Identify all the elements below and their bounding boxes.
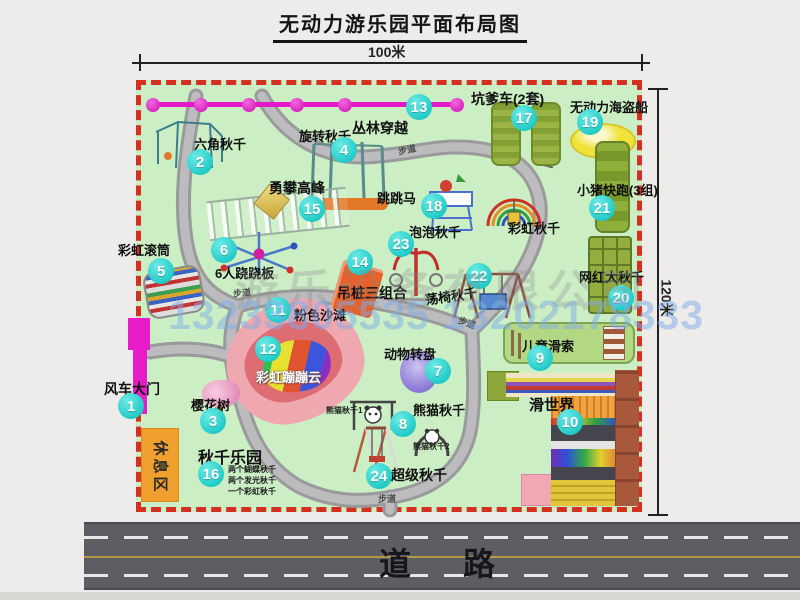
badge-6: 6 bbox=[211, 237, 237, 263]
mini-label: 熊猫秋千1 bbox=[326, 405, 362, 416]
rest-area-label: 休息区 bbox=[151, 436, 172, 500]
badge-1: 1 bbox=[118, 393, 144, 419]
top-dimension-tick-left bbox=[139, 54, 141, 71]
badge-11: 11 bbox=[265, 297, 291, 323]
badge-8: 8 bbox=[390, 411, 416, 437]
swing-note-line: 两个发光秋千 bbox=[228, 475, 276, 486]
walkway-label: 步道 bbox=[378, 492, 396, 505]
road-label: 道 路 bbox=[84, 539, 800, 585]
attraction-label-14: 吊桩三组合 bbox=[337, 283, 407, 303]
badge-18: 18 bbox=[421, 193, 447, 219]
park-layout-screenshot: 无动力游乐园平面布局图 100米 120米 bbox=[0, 0, 800, 600]
badge-5: 5 bbox=[148, 258, 174, 284]
attraction-label-17: 坑爹车(2套) bbox=[471, 89, 544, 109]
attraction-label-6: 6人跷跷板 bbox=[215, 263, 274, 282]
attraction-label-18: 跳跳马 bbox=[377, 188, 416, 207]
striped-post-icon bbox=[603, 326, 625, 360]
slide-band-yellow-wave bbox=[551, 480, 617, 506]
attraction-label-15: 勇攀高峰 bbox=[269, 178, 325, 198]
badge-3: 3 bbox=[200, 408, 226, 434]
zipline-ball-icon bbox=[194, 98, 208, 112]
attraction-label-24: 超级秋千 bbox=[391, 465, 447, 485]
zipline-pole-icon bbox=[511, 330, 514, 356]
badge-19: 19 bbox=[577, 109, 603, 135]
badge-17: 17 bbox=[511, 105, 537, 131]
attraction-label-8: 熊猫秋千 bbox=[413, 400, 465, 419]
attraction-label-彩虹秋千: 彩虹秋千 bbox=[508, 218, 560, 237]
badge-23: 23 bbox=[388, 231, 414, 257]
top-dimension-label: 100米 bbox=[368, 42, 405, 62]
road-shoulder bbox=[0, 592, 800, 600]
attraction-label-11: 粉色沙滩 bbox=[294, 305, 346, 324]
attraction-label-7: 动物转盘 bbox=[384, 344, 436, 363]
zipline-ball-icon bbox=[290, 98, 304, 112]
rest-area-box: 休息区 bbox=[141, 428, 179, 502]
badge-16: 16 bbox=[198, 461, 224, 487]
attraction-label-21: 小猪快跑(3组) bbox=[577, 180, 658, 199]
badge-2: 2 bbox=[187, 149, 213, 175]
badge-9: 9 bbox=[527, 345, 553, 371]
attraction-label-13: 丛林穿越 bbox=[352, 118, 408, 138]
attraction-label-5: 彩虹滚筒 bbox=[118, 240, 170, 259]
slide-band-rainbow bbox=[551, 449, 617, 467]
road: 道 路 bbox=[84, 522, 800, 590]
swing-note-line: 一个彩虹秋千 bbox=[228, 486, 276, 497]
zipline-ball-icon bbox=[146, 98, 160, 112]
badge-24: 24 bbox=[366, 463, 392, 489]
badge-14: 14 bbox=[347, 249, 373, 275]
badge-21: 21 bbox=[589, 195, 615, 221]
windmill-gate-icon bbox=[128, 318, 150, 350]
top-dimension-tick-right bbox=[641, 54, 643, 71]
zipline-ball-icon bbox=[242, 98, 256, 112]
right-dimension-label: 120米 bbox=[657, 279, 677, 316]
zipline-ball-icon bbox=[338, 98, 352, 112]
badge-22: 22 bbox=[466, 263, 492, 289]
zipline-pole-icon bbox=[518, 333, 521, 359]
right-dimension-tick-bottom bbox=[648, 514, 668, 516]
attraction-label-20: 网红大秋千 bbox=[579, 267, 644, 286]
zipline-ball-icon bbox=[450, 98, 464, 112]
badge-7: 7 bbox=[425, 358, 451, 384]
top-dimension-line bbox=[132, 62, 650, 64]
walkway-label: 步道 bbox=[232, 285, 251, 300]
slide-band-dark bbox=[551, 467, 617, 480]
badge-4: 4 bbox=[331, 137, 357, 163]
badge-13: 13 bbox=[406, 94, 432, 120]
attraction-label-12: 彩虹蹦蹦云 bbox=[256, 367, 321, 386]
slide-tower-strip bbox=[615, 370, 639, 506]
page-title: 无动力游乐园平面布局图 bbox=[0, 8, 800, 43]
swing-park-notes: 两个蝴蝶秋千两个发光秋千一个彩虹秋千 bbox=[228, 464, 276, 497]
badge-12: 12 bbox=[255, 336, 281, 362]
slide-pink-block bbox=[521, 474, 553, 506]
badge-10: 10 bbox=[557, 409, 583, 435]
attraction-label-23: 泡泡秋千 bbox=[409, 222, 461, 241]
mini-label: 熊猫秋千2 bbox=[413, 441, 449, 452]
slide-band-light bbox=[551, 441, 617, 449]
badge-20: 20 bbox=[608, 285, 634, 311]
right-dimension-tick-top bbox=[648, 88, 668, 90]
badge-15: 15 bbox=[299, 196, 325, 222]
